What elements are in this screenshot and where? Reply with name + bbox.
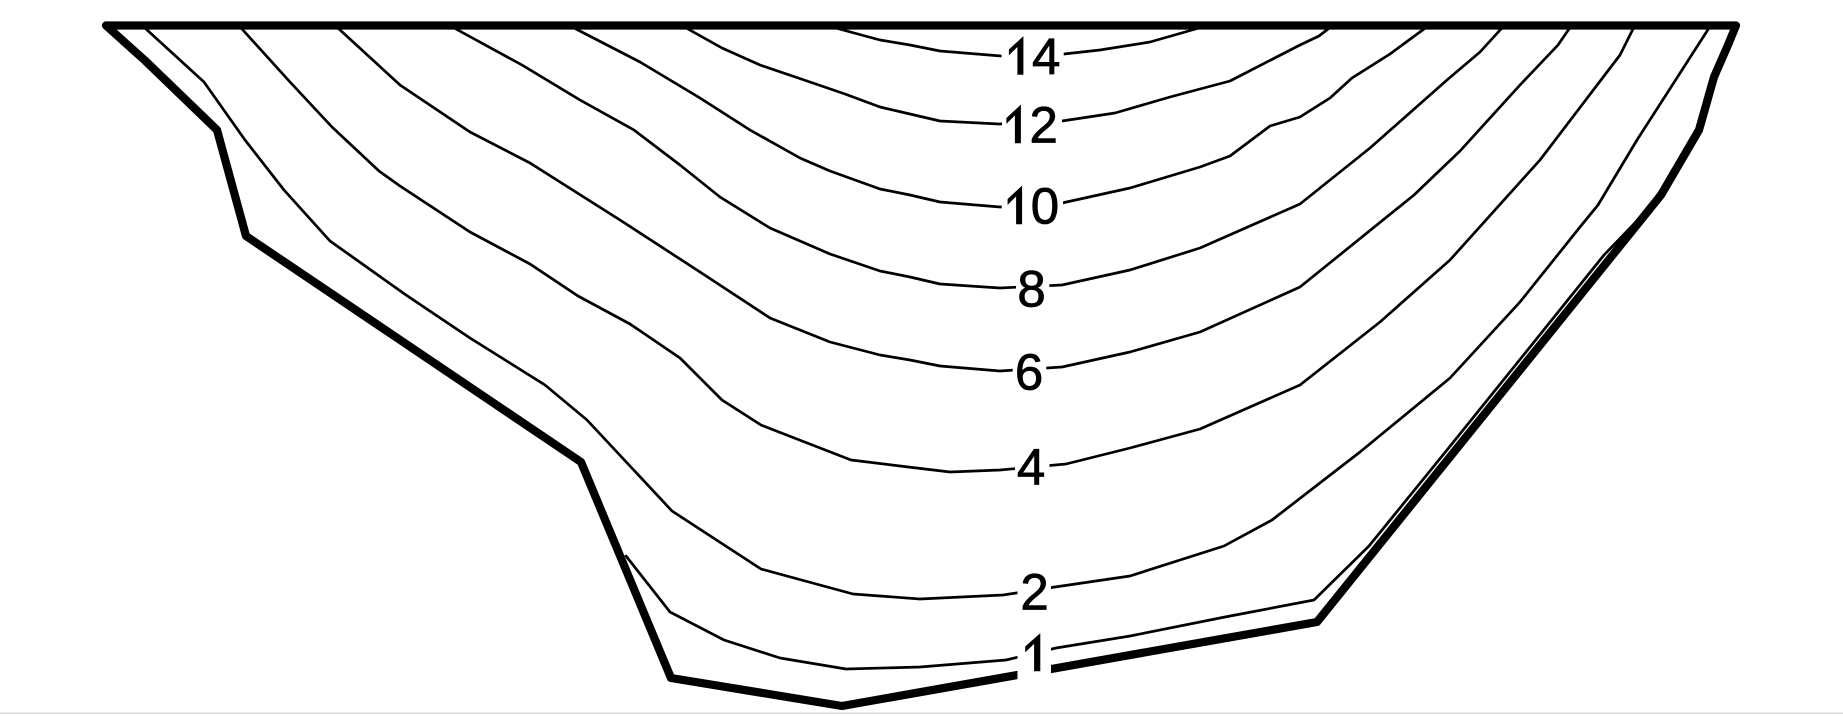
svg-text:8: 8 — [1017, 261, 1045, 318]
svg-text:4: 4 — [1032, 28, 1060, 85]
svg-text:4: 4 — [1017, 439, 1045, 496]
svg-text:6: 6 — [1015, 344, 1043, 401]
svg-text:2: 2 — [1030, 97, 1058, 154]
svg-text:0: 0 — [1031, 178, 1059, 235]
svg-text:2: 2 — [1020, 564, 1048, 621]
